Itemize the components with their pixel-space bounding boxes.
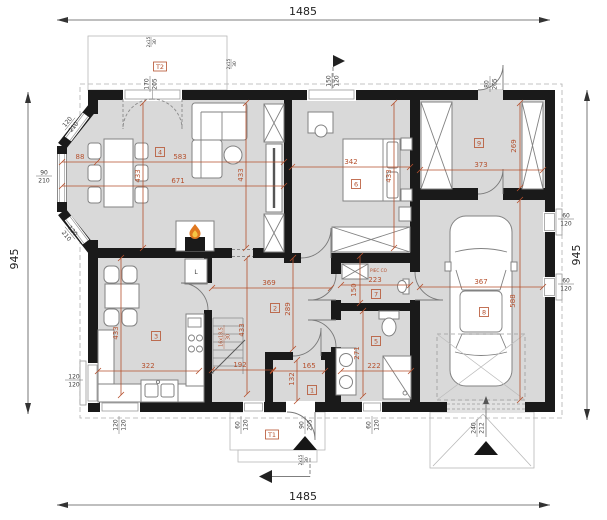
svg-text:271: 271 [353,346,361,359]
t2-tag: T2 [154,62,167,71]
back-door-opening [478,89,503,101]
fridge-icon: L [185,259,207,284]
svg-text:205: 205 [492,78,499,90]
svg-text:90: 90 [40,170,48,177]
svg-text:60: 60 [235,421,242,429]
garage-entrance-arrow-icon [474,441,498,455]
svg-text:6: 6 [354,180,358,188]
svg-text:120: 120 [560,286,572,293]
t1-size-label: 90205 [299,416,314,434]
dim-right: 945 [570,245,583,266]
svg-text:433: 433 [238,323,246,336]
svg-text:240: 240 [471,422,478,434]
svg-text:120: 120 [334,75,341,87]
svg-text:5: 5 [374,337,378,345]
svg-text:588: 588 [509,294,517,307]
svg-text:60: 60 [562,278,570,285]
kitchen-bottom-window-label: 120120 [113,416,128,434]
svg-text:16x18,5: 16x18,5 [219,327,225,347]
sink-icon [340,354,353,367]
svg-text:132: 132 [288,372,296,385]
svg-text:150: 150 [350,283,358,296]
sink-icon [340,376,353,389]
svg-text:80: 80 [484,80,491,88]
svg-text:120: 120 [560,221,572,228]
dim-top: 1485 [289,5,317,18]
svg-text:3: 3 [154,332,158,340]
fireplace-icon [176,221,214,251]
garage-apron [430,412,534,468]
boiler-label: PIEC CO [370,268,388,273]
svg-text:120: 120 [243,419,250,431]
svg-text:120: 120 [68,382,80,389]
svg-text:322: 322 [141,362,154,370]
svg-text:9: 9 [477,139,481,147]
svg-text:223: 223 [368,276,381,284]
svg-text:210: 210 [38,178,50,185]
t1-tag: T1 [266,430,279,439]
svg-text:369: 369 [262,279,275,287]
svg-text:583: 583 [173,153,186,161]
nightstand [401,189,412,201]
svg-text:T2: T2 [155,63,164,71]
svg-text:170: 170 [144,78,151,90]
svg-text:433: 433 [134,169,142,182]
svg-text:4: 4 [158,148,162,156]
svg-text:2: 2 [273,304,277,312]
svg-text:433: 433 [112,326,120,339]
svg-text:373: 373 [474,161,487,169]
floor-plan-drawing: L [0,0,607,520]
svg-text:30: 30 [232,61,238,67]
bath-bottom-window-label: 60120 [366,416,381,434]
svg-text:367: 367 [474,278,487,286]
svg-text:1: 1 [310,386,314,394]
bench [399,207,411,221]
svg-text:205: 205 [152,78,159,90]
garage-door-label: 240212 [471,419,486,437]
desk-chair [315,125,327,137]
dim-bottom: 1485 [289,490,317,503]
nightstand [401,138,412,150]
svg-text:212: 212 [479,422,486,434]
terrace-steps-label: 2x1530 [146,36,158,47]
washbasin-icon [398,281,407,293]
svg-text:671: 671 [171,177,184,185]
back-door-swing [478,65,503,90]
svg-text:165: 165 [302,362,315,370]
car-icon [445,216,517,386]
living-wardrobe-column [264,104,284,252]
svg-text:192: 192 [233,361,246,369]
svg-text:30: 30 [152,39,158,45]
entrance-arrow-icon [293,436,317,450]
svg-text:205: 205 [307,419,314,431]
svg-text:8: 8 [482,308,486,316]
svg-text:30: 30 [226,334,232,340]
dim-left: 945 [8,249,21,270]
svg-text:433: 433 [385,169,393,182]
entrance-door-t1-opening [286,401,315,413]
kitchen-table-set [104,266,139,326]
svg-text:289: 289 [284,302,292,315]
svg-text:120: 120 [68,374,80,381]
floorplan-canvas: L [0,0,607,520]
porch-steps-label: 2x1530 [298,454,310,465]
svg-text:60: 60 [366,421,373,429]
svg-text:342: 342 [344,158,357,166]
coffee-table [224,146,242,164]
garage-window-2 [543,277,556,297]
terrace-steps-label-2: 2x1530 [226,58,238,69]
svg-text:433: 433 [237,168,245,181]
svg-text:7: 7 [374,290,378,298]
hall-bottom-window-label: 60120 [235,416,250,434]
svg-text:60: 60 [562,213,570,220]
t2-size-label: 170205 [144,76,159,92]
svg-text:90: 90 [299,421,306,429]
svg-text:269: 269 [510,139,518,152]
svg-text:120: 120 [374,419,381,431]
svg-text:T1: T1 [267,431,276,439]
bay-front-label: 90210 [36,170,52,185]
garage-window-1 [543,212,556,232]
svg-text:222: 222 [367,362,380,370]
svg-text:120: 120 [121,419,128,431]
svg-text:120: 120 [113,419,120,431]
svg-text:150: 150 [326,75,333,87]
svg-text:88: 88 [76,153,85,161]
svg-text:30: 30 [304,457,310,463]
